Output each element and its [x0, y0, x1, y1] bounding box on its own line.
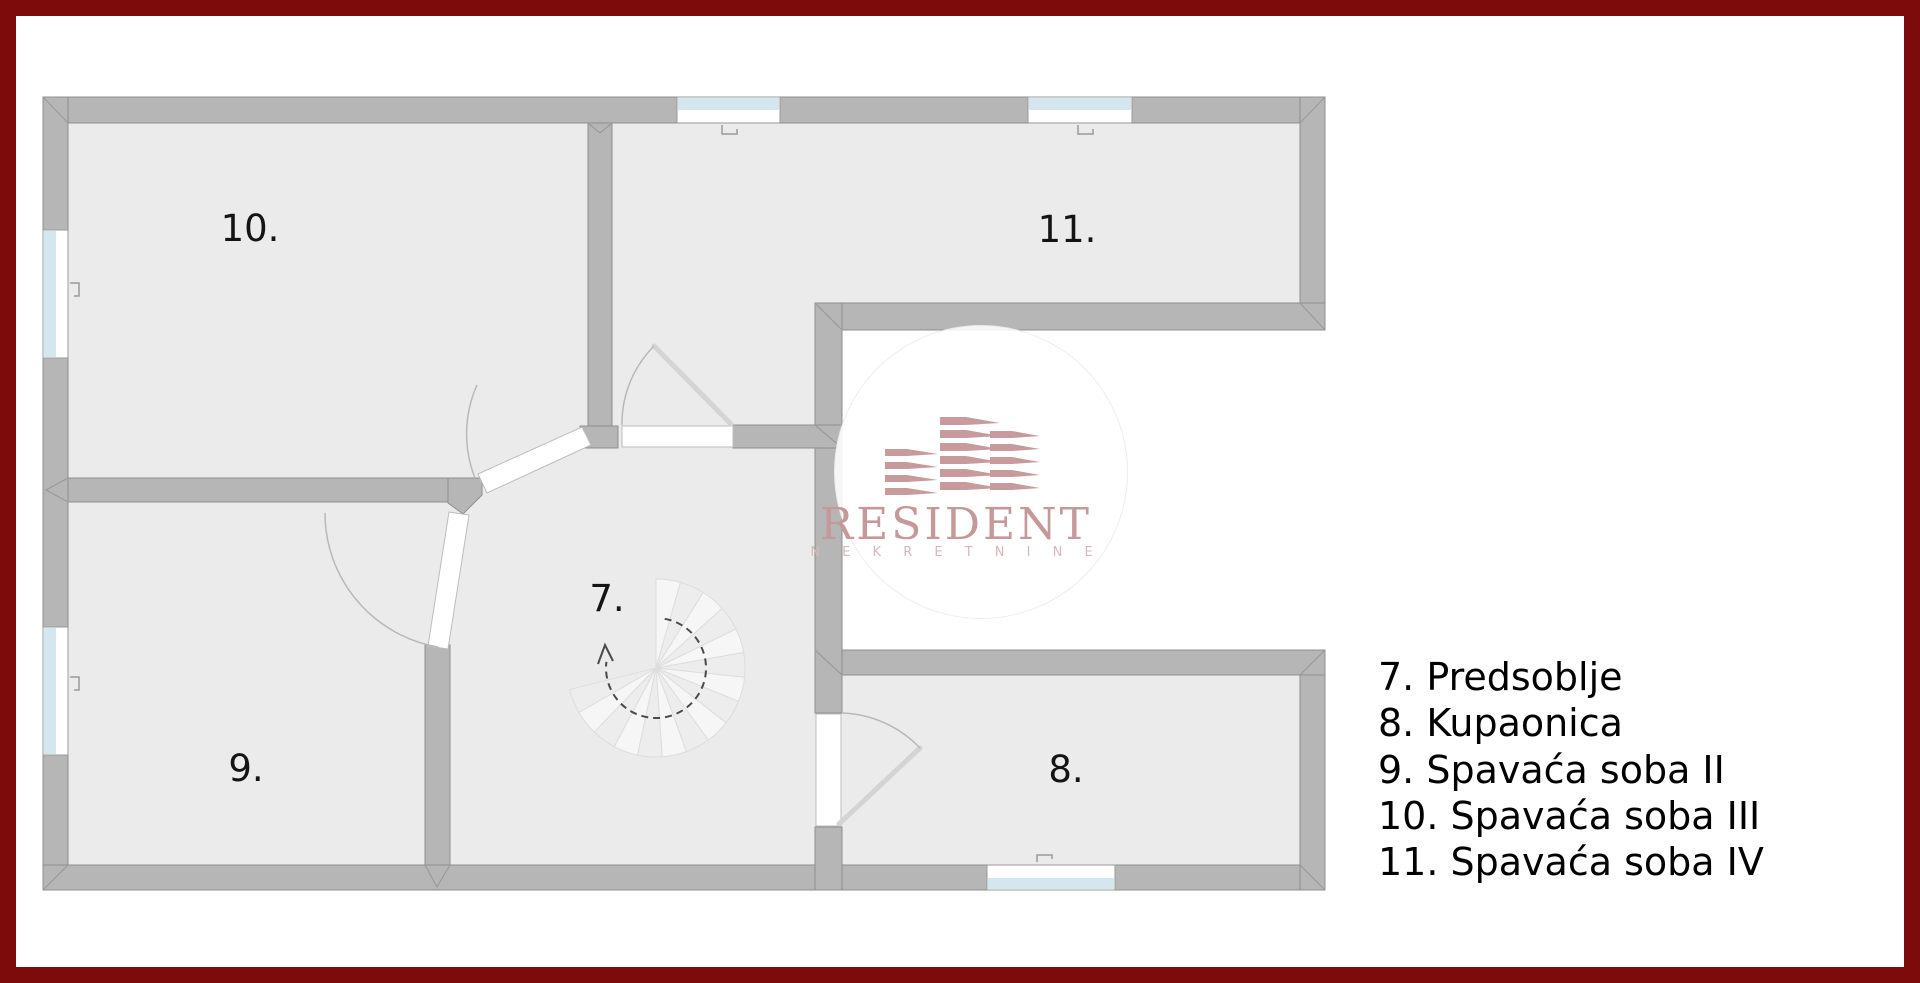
legend-item: 8. Kupaonica	[1378, 700, 1764, 746]
wall-mid-vertical-lower	[815, 827, 842, 890]
wall-divider-10-11	[588, 123, 612, 430]
room-label-11: 11.	[1007, 211, 1127, 248]
wall-right-upper	[1300, 97, 1325, 330]
room-label-10: 10.	[190, 210, 310, 247]
watermark-brand-text: RESIDENT	[820, 503, 1092, 547]
legend-item: 10. Spavaća soba III	[1378, 793, 1764, 839]
room-label-9: 9.	[186, 750, 306, 787]
wall-divider-9-7	[425, 645, 450, 865]
wall-room8-top	[842, 650, 1325, 675]
legend-item: 9. Spavaća soba II	[1378, 747, 1764, 793]
watermark-subtitle-text: N E K R E T N I N E	[810, 546, 1101, 559]
wall-bottom	[43, 865, 1325, 890]
legend-item: 11. Spavaća soba IV	[1378, 839, 1764, 885]
wall-room11-bottom	[815, 303, 1325, 330]
wall-divider-10-9	[68, 478, 452, 502]
legend: 7. Predsoblje 8. Kupaonica 9. Spavaća so…	[1378, 654, 1764, 885]
wall-hall-top	[733, 425, 842, 448]
wall-left	[43, 97, 68, 890]
watermark	[835, 326, 1128, 619]
wall-right-lower	[1300, 650, 1325, 890]
room-label-7: 7.	[547, 580, 667, 617]
room-label-8: 8.	[1006, 751, 1126, 788]
legend-item: 7. Predsoblje	[1378, 654, 1764, 700]
